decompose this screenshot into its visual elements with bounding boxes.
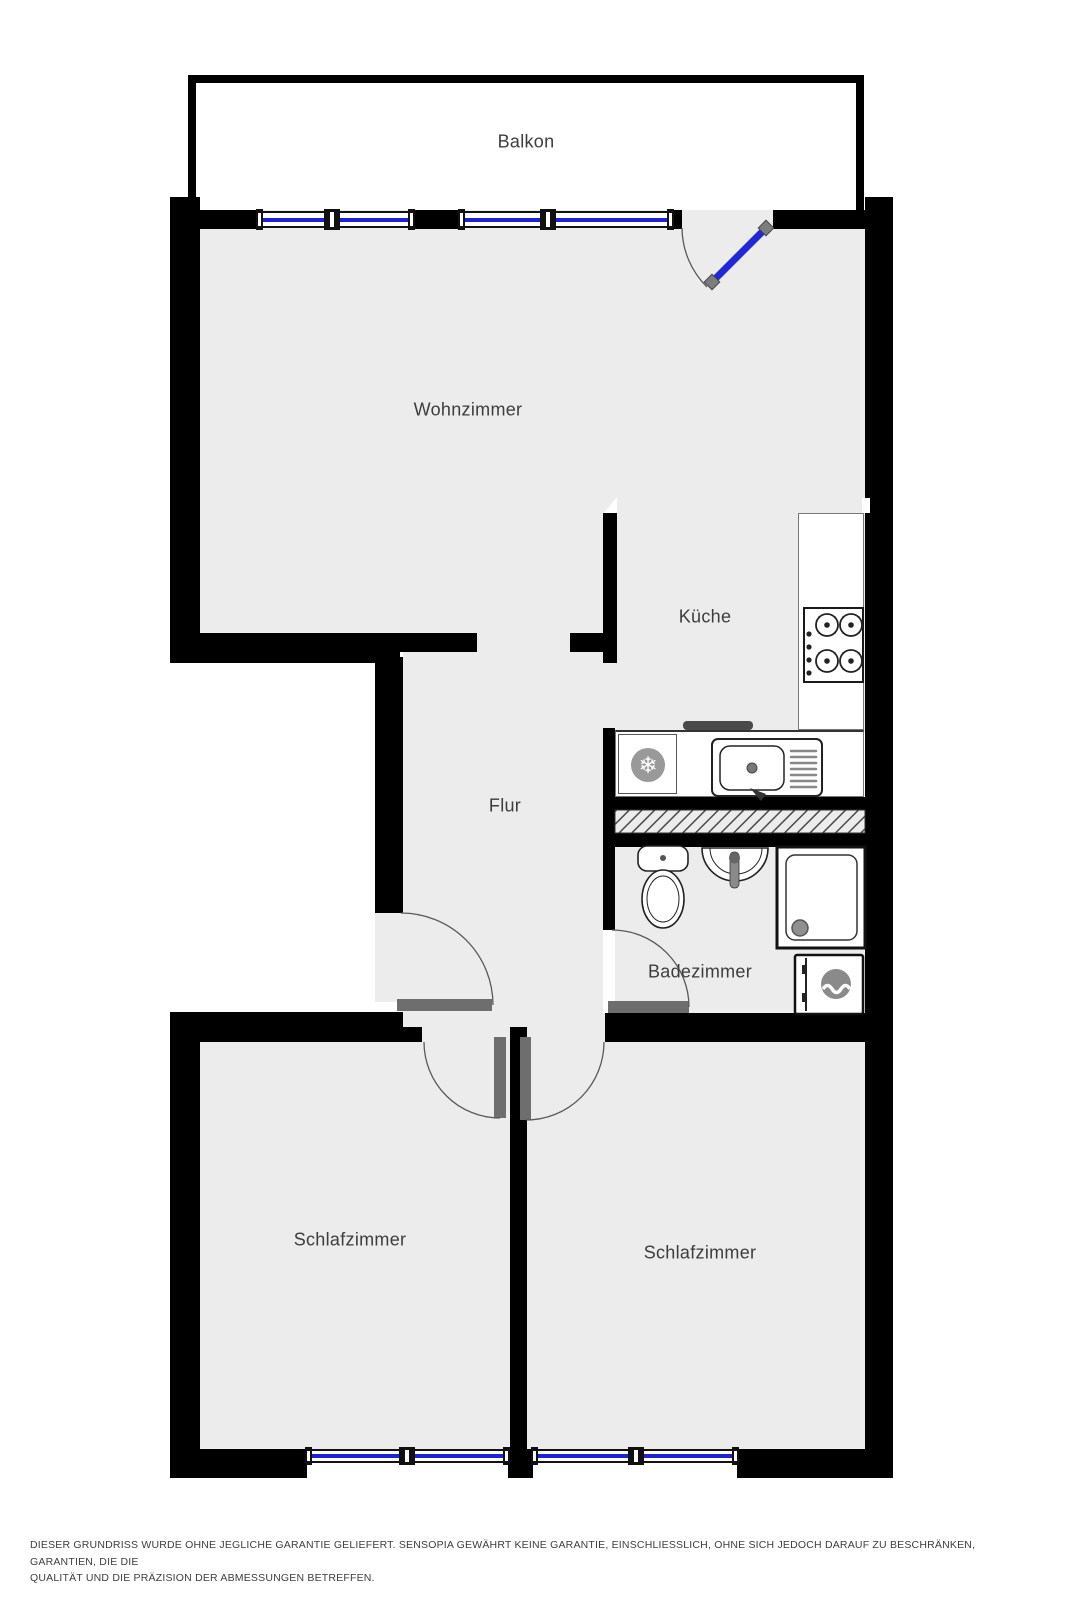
window-end-cap [503,1447,510,1465]
wall [375,657,403,913]
window-end-cap [458,209,465,230]
fridge [618,734,677,794]
wall [170,1449,307,1478]
disclaimer-line-2: QUALITÄT UND DIE PRÄZISION DER ABMESSUNG… [30,1570,1042,1587]
disclaimer-text: DIESER GRUNDRISS WURDE OHNE JEGLICHE GAR… [30,1537,1042,1587]
wall [605,1013,893,1042]
window-end-cap [667,209,674,230]
room-label-schlafzimmer-rechts: Schlafzimmer [644,1243,757,1264]
wall [603,513,617,663]
window [307,1449,508,1463]
disclaimer-line-1: DIESER GRUNDRISS WURDE OHNE JEGLICHE GAR… [30,1537,1042,1570]
wall [188,75,196,210]
window-mid-post [324,209,340,230]
bedroom-right-door-leaf [520,1037,531,1120]
entrance-door-leaf [397,999,492,1011]
wall [403,1027,422,1042]
room-label-badezimmer: Badezimmer [648,962,752,983]
window [533,1449,737,1463]
wall [170,197,200,663]
wall [603,728,615,930]
counter-dark-bar [683,721,753,730]
stove [803,607,864,683]
bathroom-door-leaf [608,1001,689,1013]
room-label-flur: Flur [489,796,521,817]
wall [400,633,477,652]
window-mid-post [399,1447,415,1465]
wall [603,833,865,847]
room-label-kueche: Küche [679,607,732,628]
wall [188,75,864,83]
wall [170,1012,200,1449]
wall [570,633,603,652]
wall [856,75,864,210]
window [258,211,413,228]
window-end-cap [408,209,415,230]
entrance-doorway-floor [375,913,403,1002]
wall [508,1449,533,1478]
window-end-cap [531,1447,538,1465]
wall [170,633,400,663]
wall [170,1012,403,1042]
floor-plan: ❄ [0,0,1067,1600]
window-end-cap [305,1447,312,1465]
room-label-wohnzimmer: Wohnzimmer [414,400,523,421]
wall [413,210,460,229]
wall [603,797,865,810]
window-end-cap [732,1447,739,1465]
room-floor-flur [403,633,603,1042]
window-end-cap [256,209,263,230]
room-label-schlafzimmer-links: Schlafzimmer [294,1230,407,1251]
room-floor-badezimmer [615,847,865,1013]
room-floor-schlafzimmer-rechts [527,1013,865,1449]
window-mid-post [540,209,556,230]
window [460,211,672,228]
room-label-balkon: Balkon [498,132,555,153]
bedroom-left-door-leaf [494,1037,506,1118]
window-pane-line [462,218,670,222]
wall [865,197,893,1478]
window-mid-post [628,1447,644,1465]
